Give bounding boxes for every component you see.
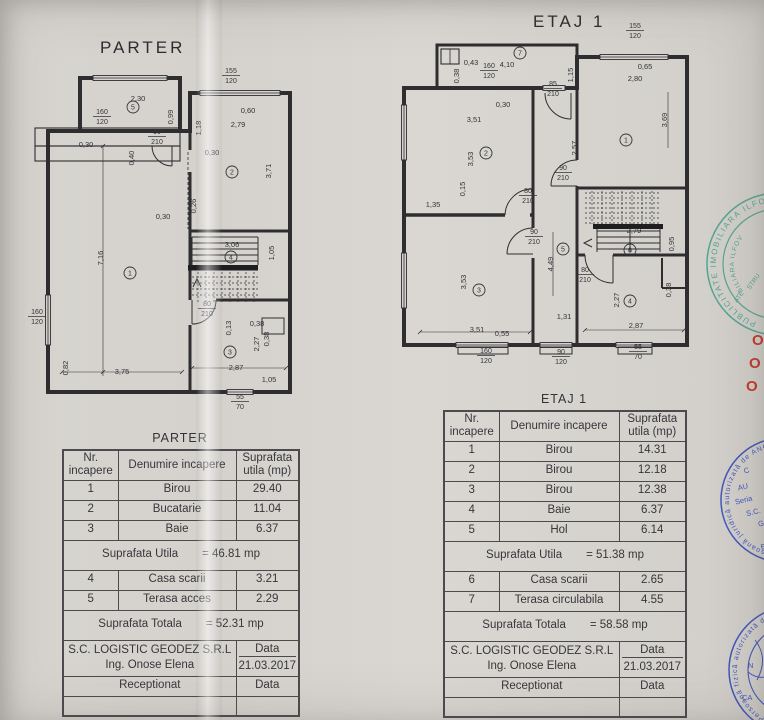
opening-size-label: 155 [629, 23, 641, 30]
teal-stamp-ring-text: PUBLICITATE IMOBILIARA ILFOV ★ O [709, 195, 764, 329]
opening-size-label: 160 [483, 63, 495, 70]
dim-label: 1,35 [426, 200, 441, 209]
dim-label: 2,87 [229, 363, 244, 372]
room-number: 3 [228, 350, 232, 357]
opening-size-label: 120 [225, 78, 237, 85]
dim-label: 3,06 [225, 240, 240, 249]
total-row: Suprafata Totala= 52.31 mp [63, 610, 299, 640]
opening-size-label: 120 [629, 33, 641, 40]
room-number: 1 [128, 271, 132, 278]
dim-label: 0,38 [452, 69, 461, 84]
table-row: 5 Hol 6.14 [444, 521, 686, 541]
total-row: Suprafata Totala= 58.58 mp [444, 611, 686, 641]
svg-text:N: N [748, 661, 753, 670]
opening-size-label: 210 [579, 277, 591, 284]
table-row: 2 Bucatarie 11.04 [63, 500, 299, 520]
room-number: 6 [628, 248, 632, 255]
dim-label: 0,26 [189, 199, 198, 214]
data-label: Data [622, 643, 684, 658]
parter-area-table: Nr.incapere Denumire incapere Suprafatau… [62, 449, 300, 717]
dim-label: 0,65 [638, 62, 653, 71]
receptionat-row: Receptionat Data [444, 677, 686, 697]
dim-label: 2,27 [612, 293, 621, 308]
dim-label: 0,38 [250, 319, 265, 328]
etaj-area-table: Nr.incapere Denumire incapere Suprafatau… [443, 410, 687, 718]
opening-size-label: 55 [634, 344, 642, 351]
dim-label: 1,31 [557, 312, 572, 321]
opening-size-label: 210 [151, 139, 163, 146]
table-row: 1 Birou 14.31 [444, 441, 686, 461]
opening-size-label: 160 [31, 309, 43, 316]
svg-text:S.C.: S.C. [745, 506, 761, 518]
svg-text:O: O [752, 332, 764, 349]
receptionat-row: Receptionat Data [63, 676, 299, 696]
dim-label: 0,30 [79, 140, 94, 149]
dim-label: 2,79 [627, 226, 642, 235]
opening-size-label: 210 [528, 239, 540, 246]
opening-size-label: 120 [555, 359, 567, 366]
opening-size-label: 80 [581, 267, 589, 274]
table-row: 3 Baie 6.37 [63, 520, 299, 540]
stamp-person-blue: Persoană fizică autorizată de ANC N CA [729, 606, 764, 720]
etaj-walls [402, 45, 688, 354]
table-row: 1 Birou 29.40 [63, 480, 299, 500]
col-header-nr: Nr.incapere [444, 411, 499, 441]
svg-text:G: G [757, 518, 764, 528]
data-label: Data [239, 642, 297, 657]
dim-label: 0,55 [495, 329, 510, 338]
dim-label: 4,10 [500, 60, 515, 69]
opening-size-label: 160 [480, 348, 492, 355]
room-number: 5 [561, 247, 565, 254]
opening-size-label: 90 [153, 129, 161, 136]
room-number: 4 [229, 255, 233, 262]
table-row: 4 Baie 6.37 [444, 501, 686, 521]
table-row: 2 Birou 12.18 [444, 461, 686, 481]
svg-text:CA: CA [742, 693, 752, 702]
etaj-plan-labels: 0,434,100,652,800,303,511,353,510,552,79… [426, 23, 676, 366]
parter-plan-labels: 2,300,602,790,300,300,303,060,383,752,87… [28, 68, 276, 411]
etaj-area-section: ETAJ 1 Nr.incapere Denumire incapere Sup… [443, 392, 685, 718]
dim-label: 0,40 [127, 151, 136, 166]
dim-label: 7,16 [96, 251, 105, 266]
dim-label: 2,79 [231, 120, 246, 129]
surveyor-row: S.C. LOGISTIC GEODEZ S.R.L Ing. Onose El… [63, 640, 299, 676]
svg-text:O: O [749, 355, 761, 372]
table-header-row: Nr.incapere Denumire incapere Suprafatau… [444, 411, 686, 441]
surveyor-row: S.C. LOGISTIC GEODEZ S.R.L Ing. Onose El… [444, 641, 686, 677]
opening-size-label: 120 [31, 319, 43, 326]
dim-label: 3,53 [466, 152, 475, 167]
opening-size-label: 90 [530, 229, 538, 236]
col-header-denumire: Denumire incapere [118, 450, 236, 480]
col-header-suprafata: Suprafatautila (mp) [236, 450, 299, 480]
table-row: 5 Terasa acces 2.29 [63, 590, 299, 610]
opening-size-label: 80 [203, 301, 211, 308]
parter-table-title: PARTER [62, 431, 298, 445]
room-number: 3 [477, 288, 481, 295]
surveyor-engineer: Ing. Onose Elena [447, 659, 617, 674]
room-number: 2 [230, 170, 234, 177]
teal-stamp-fragment: ATE [733, 290, 746, 305]
dim-label: 0,99 [166, 110, 175, 125]
dim-label: 2,30 [131, 94, 146, 103]
opening-size-label: 90 [557, 349, 565, 356]
stamp-firm-blue: persoană juridică autorizată de ANCPI C … [708, 425, 764, 575]
empty-row [444, 697, 686, 717]
parter-area-section: PARTER Nr.incapere Denumire incapere Sup… [62, 431, 298, 717]
dim-label: 0,13 [224, 321, 233, 336]
etaj-table-title: ETAJ 1 [443, 392, 685, 406]
room-number: 2 [484, 151, 488, 158]
table-header-row: Nr.incapere Denumire incapere Suprafatau… [63, 450, 299, 480]
dim-label: 1,18 [194, 121, 203, 136]
opening-size-label: 210 [557, 175, 569, 182]
room-number: 7 [518, 51, 522, 58]
opening-size-label: 70 [634, 354, 642, 361]
opening-size-label: 210 [201, 311, 213, 318]
etaj-plan-title: ETAJ 1 [533, 12, 605, 32]
surveyor-engineer: Ing. Onose Elena [66, 658, 234, 673]
table-row: 7 Terasa circulabila 4.55 [444, 591, 686, 611]
dim-label: 2,57 [570, 141, 579, 156]
col-header-suprafata: Suprafatautila (mp) [619, 411, 686, 441]
opening-size-label: 90 [559, 165, 567, 172]
dim-label: 0,30 [496, 100, 511, 109]
svg-text:PUBLICITATE IMOBILIARA ILFOV ★: PUBLICITATE IMOBILIARA ILFOV ★ O [709, 195, 764, 329]
dim-label: 4,49 [546, 257, 555, 272]
svg-text:Seria: Seria [734, 493, 754, 506]
opening-size-label: 80 [524, 188, 532, 195]
stamp-ocpi-teal: PUBLICITATE IMOBILIARA ILFOV ★ O BILIARA… [707, 193, 764, 335]
surveyor-firm: S.C. LOGISTIC GEODEZ S.R.L [66, 643, 234, 658]
dim-label: 1,05 [267, 246, 276, 261]
svg-text:AU: AU [737, 481, 749, 492]
opening-size-label: 85 [549, 81, 557, 88]
svg-text:C: C [743, 465, 751, 475]
opening-size-label: 120 [96, 119, 108, 126]
subtotal-row: Suprafata Utila= 51.38 mp [444, 541, 686, 571]
dim-label: 0,95 [667, 237, 676, 252]
date-value: 21.03.2017 [622, 658, 684, 676]
empty-row [63, 696, 299, 716]
dim-label: 0,30 [205, 148, 220, 157]
dim-label: 3,69 [660, 113, 669, 128]
surveyor-firm: S.C. LOGISTIC GEODEZ S.R.L [447, 644, 617, 659]
dim-label: 3,75 [115, 367, 130, 376]
dim-label: 2,80 [628, 74, 643, 83]
opening-size-label: 210 [547, 91, 559, 98]
red-stamp-marks: O O O [746, 332, 764, 395]
opening-size-label: 120 [483, 73, 495, 80]
opening-size-label: 70 [236, 404, 244, 411]
dim-label: 3,71 [264, 164, 273, 179]
dim-label: 3,53 [459, 275, 468, 290]
room-number: 1 [624, 138, 628, 145]
dim-label: 2,87 [629, 321, 644, 330]
parter-plan-title: PARTER [100, 38, 185, 58]
table-row: 6 Casa scarii 2.65 [444, 571, 686, 591]
dim-label: 3,51 [470, 325, 485, 334]
dim-label: 0,43 [464, 58, 479, 67]
table-row: 4 Casa scarii 3.21 [63, 570, 299, 590]
dim-label: 0,82 [61, 361, 70, 376]
dim-label: 1,15 [566, 68, 575, 83]
dim-label: 3,51 [467, 115, 482, 124]
opening-size-label: 160 [96, 109, 108, 116]
opening-size-label: 120 [480, 358, 492, 365]
svg-text:O: O [746, 378, 758, 395]
col-header-denumire: Denumire incapere [499, 411, 619, 441]
col-header-nr: Nr.incapere [63, 450, 118, 480]
dim-label: 0,30 [156, 212, 171, 221]
dim-label: 1,05 [262, 375, 277, 384]
table-row: 3 Birou 12.38 [444, 481, 686, 501]
opening-size-label: 155 [225, 68, 237, 75]
teal-stamp-fragment: STRU [746, 272, 762, 291]
scanned-document-page: 2,300,602,790,300,300,303,060,383,752,87… [0, 0, 764, 720]
svg-text:B: B [760, 542, 764, 552]
svg-text:BILIARA ILFOV: BILIARA ILFOV [729, 234, 745, 294]
dim-label: 0,38 [262, 332, 271, 347]
room-number: 5 [131, 105, 135, 112]
date-value: 21.03.2017 [239, 657, 297, 675]
opening-size-label: 55 [236, 394, 244, 401]
dim-label: 2,27 [252, 337, 261, 352]
subtotal-row: Suprafata Utila= 46.81 mp [63, 540, 299, 570]
dim-label: 0,15 [458, 182, 467, 197]
opening-size-label: 210 [522, 198, 534, 205]
dim-label: 0,60 [241, 106, 256, 115]
dim-label: 0,38 [664, 283, 673, 298]
room-number: 4 [628, 299, 632, 306]
teal-stamp-inner-ring-text: BILIARA ILFOV [729, 234, 745, 294]
